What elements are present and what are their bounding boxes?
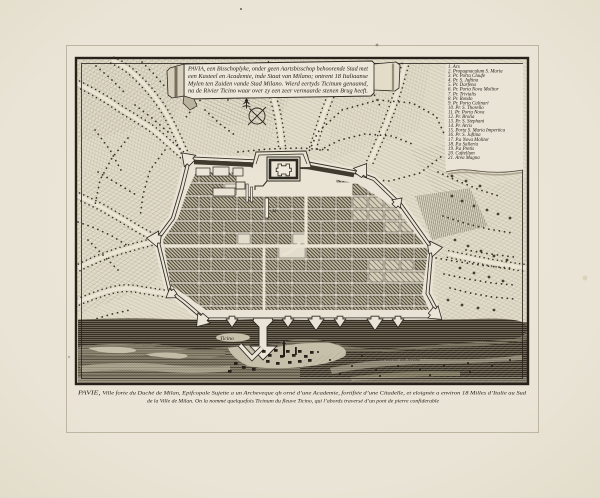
- svg-text:Ticino: Ticino: [220, 336, 234, 342]
- svg-text:na de Rivier Ticino waar over: na de Rivier Ticino waar over zy een zee…: [188, 88, 368, 95]
- svg-text:een Kasteel en Academie, inde: een Kasteel en Academie, inde Staat van …: [188, 74, 368, 80]
- svg-text:24: 24: [272, 208, 277, 213]
- svg-text:PAVIA, een Bisschoplyke, onder: PAVIA, een Bisschoplyke, onder geen Aart…: [187, 67, 368, 73]
- svg-text:PAVIE, Ville forte du Duché de: PAVIE, Ville forte du Duché de Milan, Ep…: [77, 390, 527, 397]
- svg-text:de la Ville de Milan. On la no: de la Ville de Milan. On la nommé quelqu…: [147, 398, 440, 405]
- svg-text:Mylen ten Zuiden vande Stad Mi: Mylen ten Zuiden vande Stad Milano. Wier…: [187, 82, 369, 88]
- svg-text:Kerk vecchio van Trevino: Kerk vecchio van Trevino: [375, 357, 421, 362]
- svg-text:21. Area Magna: 21. Area Magna: [448, 156, 480, 161]
